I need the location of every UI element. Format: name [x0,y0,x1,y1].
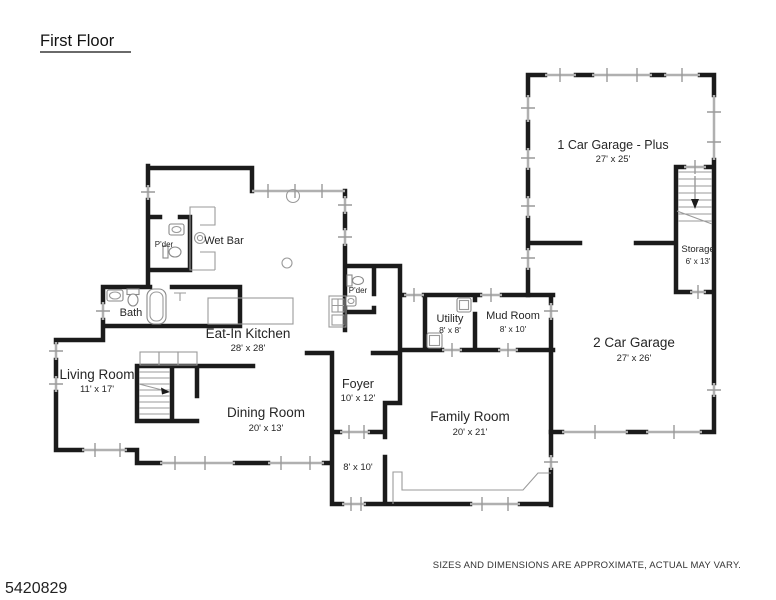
room-label-living: Living Room [59,367,134,382]
room-label-family: Family Room [430,409,510,424]
room-dims-garage-two: 27' x 26' [617,353,652,364]
room-dims-kitchen: 28' x 28' [231,343,266,354]
room-dims-family: 20' x 21' [453,427,488,438]
listing-id: 5420829 [5,580,67,597]
page-title: First Floor [40,32,115,50]
room-label-bath: Bath [120,307,143,319]
room-label-utility: Utility [437,313,464,325]
room-label-storage: Storage [681,244,714,255]
disclaimer-text: SIZES AND DIMENSIONS ARE APPROXIMATE, AC… [433,560,741,571]
room-dims-garage-one: 27' x 25' [596,154,631,165]
room-label-dining: Dining Room [227,405,305,420]
room-dims-bonus: 8' x 10' [343,462,373,473]
room-dims-storage: 6' x 13' [686,257,711,266]
room-label-foyer: Foyer [342,377,374,391]
room-label-powder-upper: P'der [155,240,174,249]
room-dims-foyer: 10' x 12' [341,393,376,404]
floor-plan-page: First Floor Eat-In Kitchen 28' x 28' Liv… [0,0,776,600]
room-dims-mud: 8' x 10' [500,324,527,334]
room-label-kitchen: Eat-In Kitchen [206,326,291,341]
room-label-mud: Mud Room [486,310,540,322]
room-label-garage-two: 2 Car Garage [593,335,675,350]
room-label-wet-bar: Wet Bar [204,235,244,247]
room-dims-dining: 20' x 13' [249,423,284,434]
floor-plan-drawing: First Floor Eat-In Kitchen 28' x 28' Liv… [0,0,776,600]
room-dims-living: 11' x 17' [80,384,114,395]
room-label-garage-one: 1 Car Garage - Plus [557,138,668,152]
room-dims-utility: 8' x 8' [439,325,461,335]
room-label-powder-center: P'der [349,286,368,295]
